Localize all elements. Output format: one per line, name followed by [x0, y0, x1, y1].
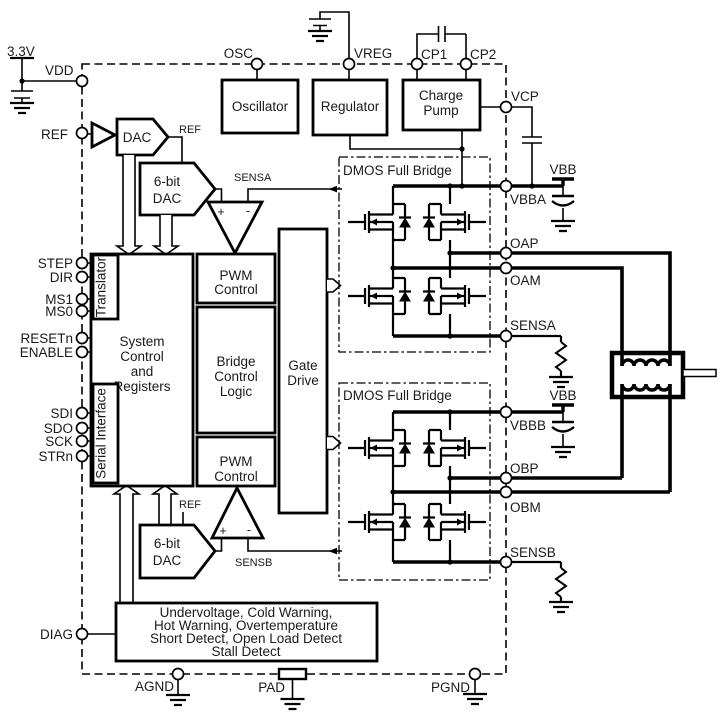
pin-ms1: [77, 294, 88, 305]
dmos-a-label: DMOS Full Bridge: [343, 163, 452, 178]
pin-obp-label: OBP: [510, 461, 539, 476]
pad-symbol: [279, 669, 306, 679]
resistor-icon: [556, 568, 566, 597]
pin-vbbb-label: VBBB: [510, 418, 546, 433]
ground-icon: [463, 694, 487, 704]
resistor-icon: [556, 342, 566, 371]
pin-cp2-label: CP2: [470, 47, 496, 62]
pin-vcp: [501, 102, 512, 113]
nmos-transistor-icon: [423, 204, 486, 240]
vbb-a-label: VBB: [549, 162, 576, 177]
pin-vreg: [344, 59, 355, 70]
pin-ref-label: REF: [41, 127, 68, 142]
pin-agnd: [173, 669, 184, 680]
pin-sensb-label: SENSB: [510, 545, 556, 560]
sensa-net-label: SENSA: [234, 172, 272, 184]
comparator-a-plus: +: [217, 205, 224, 219]
block-diagram: 3.3V Oscillator Regulator Charge Pump: [0, 0, 720, 723]
nmos-transistor-icon: [423, 430, 486, 466]
ground-icon: [166, 695, 190, 705]
nmos-transistor-icon: [423, 278, 486, 314]
translator-label: Translator: [94, 256, 109, 317]
sensb-external: [512, 562, 574, 612]
pin-vdd-label: VDD: [45, 63, 74, 78]
stepper-motor: [512, 253, 717, 492]
ground-icon: [549, 602, 573, 612]
pin-step-label: STEP: [38, 256, 73, 271]
pin-agnd-label: AGND: [135, 679, 174, 694]
charge-pump-block: Charge Pump: [403, 70, 501, 131]
pin-enable: [77, 347, 88, 358]
system-label-3: and: [131, 364, 154, 379]
pin-vreg-label: VREG: [354, 46, 392, 61]
pwm-a-label-2: Control: [214, 282, 258, 297]
pin-dir-label: DIR: [50, 270, 74, 285]
pin-oam: [501, 263, 512, 274]
pin-resetn: [77, 333, 88, 344]
ref-net-label-b: REF: [179, 499, 201, 511]
nmos-transistor-icon: [348, 204, 411, 240]
pin-osc: [252, 59, 263, 70]
translator-block: Translator: [93, 255, 118, 319]
charge-pump-label-1: Charge: [419, 88, 463, 103]
gate-drive-label-1: Gate: [288, 358, 317, 373]
dac6-b-block: REF 6-bit DAC: [140, 499, 215, 578]
comparator-b-minus: -: [247, 523, 251, 537]
regulator-block: Regulator: [313, 70, 387, 136]
pin-oap-label: OAP: [510, 236, 539, 251]
comparator-b-plus: +: [219, 524, 226, 538]
vbb-b-label: VBB: [549, 388, 576, 403]
pin-pgnd-label: PGND: [431, 680, 470, 695]
pin-resetn-label: RESETn: [20, 331, 73, 346]
ground-icon: [551, 221, 575, 231]
pin-vbbb: [501, 407, 512, 418]
pin-enable-label: ENABLE: [20, 345, 73, 360]
buffer-amp-icon: [92, 123, 115, 147]
bridge-logic-label-3: Logic: [220, 384, 253, 399]
dmos-bridge-a: DMOS Full Bridge: [339, 157, 501, 352]
pin-pgnd: [470, 669, 481, 680]
internal-supply-wires: [350, 130, 465, 189]
pin-sdi-label: SDI: [50, 406, 73, 421]
motor-shaft-icon: [683, 370, 716, 377]
pwm-a-label-1: PWM: [220, 268, 253, 283]
pin-sck: [77, 436, 88, 447]
bridge-control-logic-block: Bridge Control Logic: [197, 307, 275, 433]
pin-vbba-label: VBBA: [510, 192, 546, 207]
dmos-b-label: DMOS Full Bridge: [343, 388, 452, 403]
pin-oam-label: OAM: [510, 273, 541, 288]
nmos-transistor-icon: [348, 278, 411, 314]
pwm-b-label-1: PWM: [220, 454, 253, 469]
pwm-control-a-block: PWM Control: [197, 254, 275, 303]
diagnostics-block: Undervoltage, Cold Warning, Hot Warning,…: [88, 603, 378, 661]
pin-vcp-label: VCP: [511, 89, 539, 104]
pin-strn: [77, 451, 88, 462]
pin-vdd: [77, 76, 88, 87]
ground-icon: [10, 103, 34, 113]
ground-icon: [549, 377, 573, 387]
oscillator-block: Oscillator: [222, 70, 298, 134]
dac6-b-label-2: DAC: [153, 553, 182, 568]
dac6-a-block: 6-bit DAC: [140, 163, 215, 215]
ground-icon: [551, 447, 575, 457]
diag-line-4: Stall Detect: [211, 644, 280, 659]
nmos-transistor-icon: [423, 504, 486, 540]
ref-dac-label: DAC: [123, 130, 152, 145]
ref-buffer: [88, 123, 118, 147]
system-label-4: Registers: [113, 379, 170, 394]
capacitor-icon: [552, 422, 574, 432]
supply-3v3: 3.3V: [7, 44, 77, 113]
pin-ms0-label: MS0: [45, 304, 73, 319]
vreg-decoupling: [308, 12, 349, 59]
pin-dir: [77, 272, 88, 283]
bridge-logic-label-2: Control: [214, 369, 258, 384]
pwm-control-b-block: PWM Control: [197, 437, 275, 486]
dmos-bridge-b: DMOS Full Bridge: [339, 383, 501, 580]
ground-icon: [281, 699, 305, 709]
gate-drive-label-2: Drive: [287, 373, 319, 388]
vcp-cap: [512, 107, 543, 186]
supply-3v3-label: 3.3V: [7, 44, 35, 59]
system-label-1: System: [119, 334, 164, 349]
pin-obm: [501, 487, 512, 498]
bridge-logic-label-1: Bridge: [216, 354, 255, 369]
serial-interface-label: Serial Interface: [94, 388, 109, 479]
pin-pad-label: PAD: [258, 680, 285, 695]
capacitor-icon: [552, 196, 574, 206]
dac6-b-label-1: 6-bit: [154, 536, 181, 551]
pin-osc-label: OSC: [224, 46, 254, 61]
arrowhead-icon: [329, 186, 338, 193]
pin-cp1-label: CP1: [421, 47, 447, 62]
ground-icon: [308, 31, 332, 41]
pin-ref: [77, 128, 88, 139]
pin-obm-label: OBM: [510, 500, 541, 515]
pin-sensa-label: SENSA: [510, 318, 556, 333]
pwm-b-label-2: Control: [214, 469, 258, 484]
comparator-a-minus: -: [246, 204, 250, 218]
nmos-transistor-icon: [348, 504, 411, 540]
sensa-external: [512, 336, 574, 387]
system-label-2: Control: [120, 349, 164, 364]
ref-net-label-a: REF: [179, 124, 201, 136]
sensb-net-label: SENSB: [235, 557, 272, 569]
pin-diag: [77, 629, 88, 640]
arrowhead-icon: [329, 548, 338, 555]
dac6-a-label-1: 6-bit: [154, 174, 181, 189]
pin-strn-label: STRn: [38, 449, 73, 464]
oscillator-label: Oscillator: [232, 99, 289, 114]
pin-sdi: [77, 408, 88, 419]
pin-vbba: [501, 181, 512, 192]
pin-step: [77, 258, 88, 269]
pin-sck-label: SCK: [45, 434, 73, 449]
serial-interface-block: Serial Interface: [93, 384, 118, 483]
charge-pump-label-2: Pump: [423, 103, 458, 118]
pin-sdo: [77, 423, 88, 434]
gate-drive-block: Gate Drive: [279, 229, 341, 513]
dac6-a-label-2: DAC: [153, 191, 182, 206]
regulator-label: Regulator: [321, 99, 380, 114]
pin-diag-label: DIAG: [40, 627, 73, 642]
pin-ms0: [77, 306, 88, 317]
nmos-transistor-icon: [348, 430, 411, 466]
